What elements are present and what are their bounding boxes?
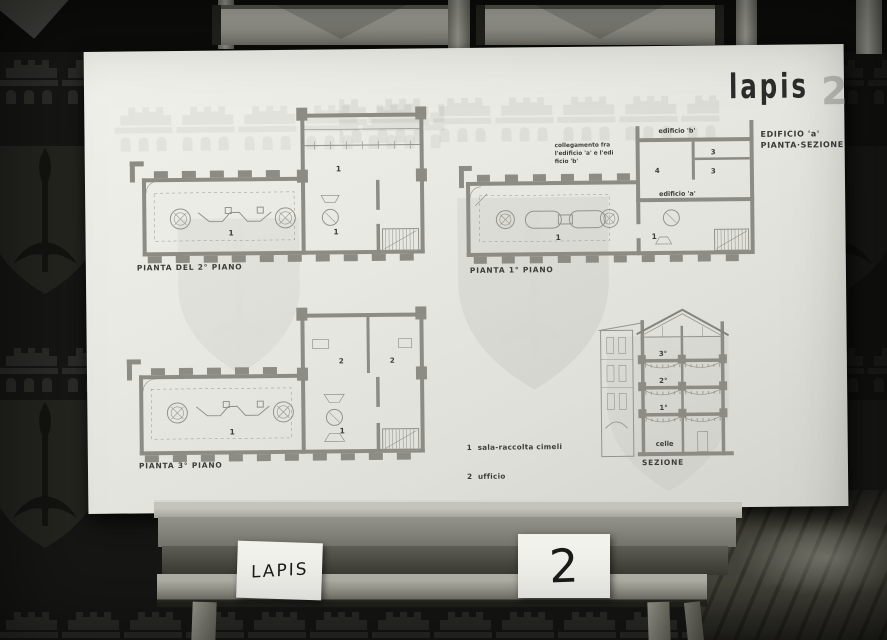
plan-first-floor-caption: PIANTA 1° PIANO bbox=[470, 265, 554, 275]
easel-post-right bbox=[736, 0, 757, 49]
plan-second-floor-caption: PIANTA DEL 2° PIANO bbox=[137, 262, 243, 272]
plan1-annotation-line3: ficio 'b' bbox=[555, 159, 579, 165]
plan3-room-hall: 1 bbox=[230, 427, 235, 436]
plan-third-floor-caption: PIANTA 3° PIANO bbox=[139, 461, 223, 471]
plan1-building-b-label: edificio 'b' bbox=[658, 127, 695, 135]
easel-post-far-right bbox=[856, 0, 882, 54]
board-subtitle: EDIFICIO 'a' PIANTA·SEZIONE bbox=[760, 128, 843, 151]
plan1-annotation-line1: collegamento fra bbox=[555, 142, 611, 149]
plan3-room-right: 1 bbox=[340, 426, 345, 435]
board-number: 2 bbox=[821, 69, 848, 113]
number-card: 2 bbox=[518, 534, 610, 598]
plan1-room-toilet-lower: 3 bbox=[711, 167, 716, 175]
name-card-text: LAPIS bbox=[251, 559, 309, 582]
plan1-room-hall: 1 bbox=[556, 233, 561, 242]
plan3-room-wing-left: 2 bbox=[339, 357, 344, 365]
bench-slab-left bbox=[212, 5, 464, 45]
shield-reflection bbox=[276, 5, 406, 39]
subtitle-line-2: PIANTA·SEZIONE bbox=[761, 139, 844, 151]
easel-rail-shadow bbox=[157, 600, 707, 607]
section-floor-1-label: 1° bbox=[659, 404, 667, 412]
plan-third-floor-drawing: 2 2 1 1 bbox=[98, 298, 430, 469]
plan1-annotation-line2: l'edificio 'a' e l'edi bbox=[555, 150, 614, 157]
plan1-building-a-label: edificio 'a' bbox=[659, 190, 696, 198]
section-basement-label: celle bbox=[656, 440, 674, 448]
plan1-room-right: 1 bbox=[652, 232, 657, 241]
plan1-details bbox=[470, 184, 749, 253]
section-floor-2-label: 2° bbox=[659, 377, 667, 385]
plan1-room-corridor: 4 bbox=[655, 167, 660, 175]
section-caption: SEZIONE bbox=[642, 458, 684, 467]
presentation-board: lapis 2 EDIFICIO 'a' PIANTA·SEZIONE bbox=[84, 44, 849, 514]
section-annex bbox=[598, 323, 641, 456]
name-card: LAPIS bbox=[236, 541, 323, 601]
easel-ledge bbox=[154, 500, 742, 518]
plan1-room-toilet-upper: 3 bbox=[711, 148, 716, 156]
plan-second-floor-drawing: 1 1 1 bbox=[98, 98, 430, 269]
section-floor-3-label: 3° bbox=[659, 350, 667, 358]
subtitle-line-1: EDIFICIO 'a' bbox=[760, 128, 843, 140]
plan2-room-hall: 1 bbox=[228, 228, 233, 237]
legend-item-1: 1 sala-raccolta cimeli bbox=[467, 442, 563, 453]
bench-slab-right bbox=[476, 5, 724, 45]
number-card-text: 2 bbox=[548, 539, 579, 594]
easel-leg-left bbox=[191, 602, 216, 640]
shield-reflection bbox=[535, 5, 665, 39]
legend-item-2: 2 ufficio bbox=[467, 471, 563, 482]
easel-post-mid bbox=[448, 0, 470, 49]
photograph-presentation-board: lapis 2 EDIFICIO 'a' PIANTA·SEZIONE bbox=[0, 0, 887, 640]
plan-first-floor-drawing: collegamento fra l'edificio 'a' e l'edi … bbox=[458, 105, 760, 268]
plan2-room-right: 1 bbox=[333, 227, 338, 236]
plan3-room-wing-right: 2 bbox=[390, 357, 395, 365]
section-drawing: 3° 2° 1° celle bbox=[596, 279, 748, 461]
plan2-room-wing: 1 bbox=[336, 164, 341, 173]
board-title: lapis bbox=[729, 66, 809, 107]
easel-leg-right-front bbox=[647, 602, 670, 640]
section-structure bbox=[636, 319, 733, 456]
